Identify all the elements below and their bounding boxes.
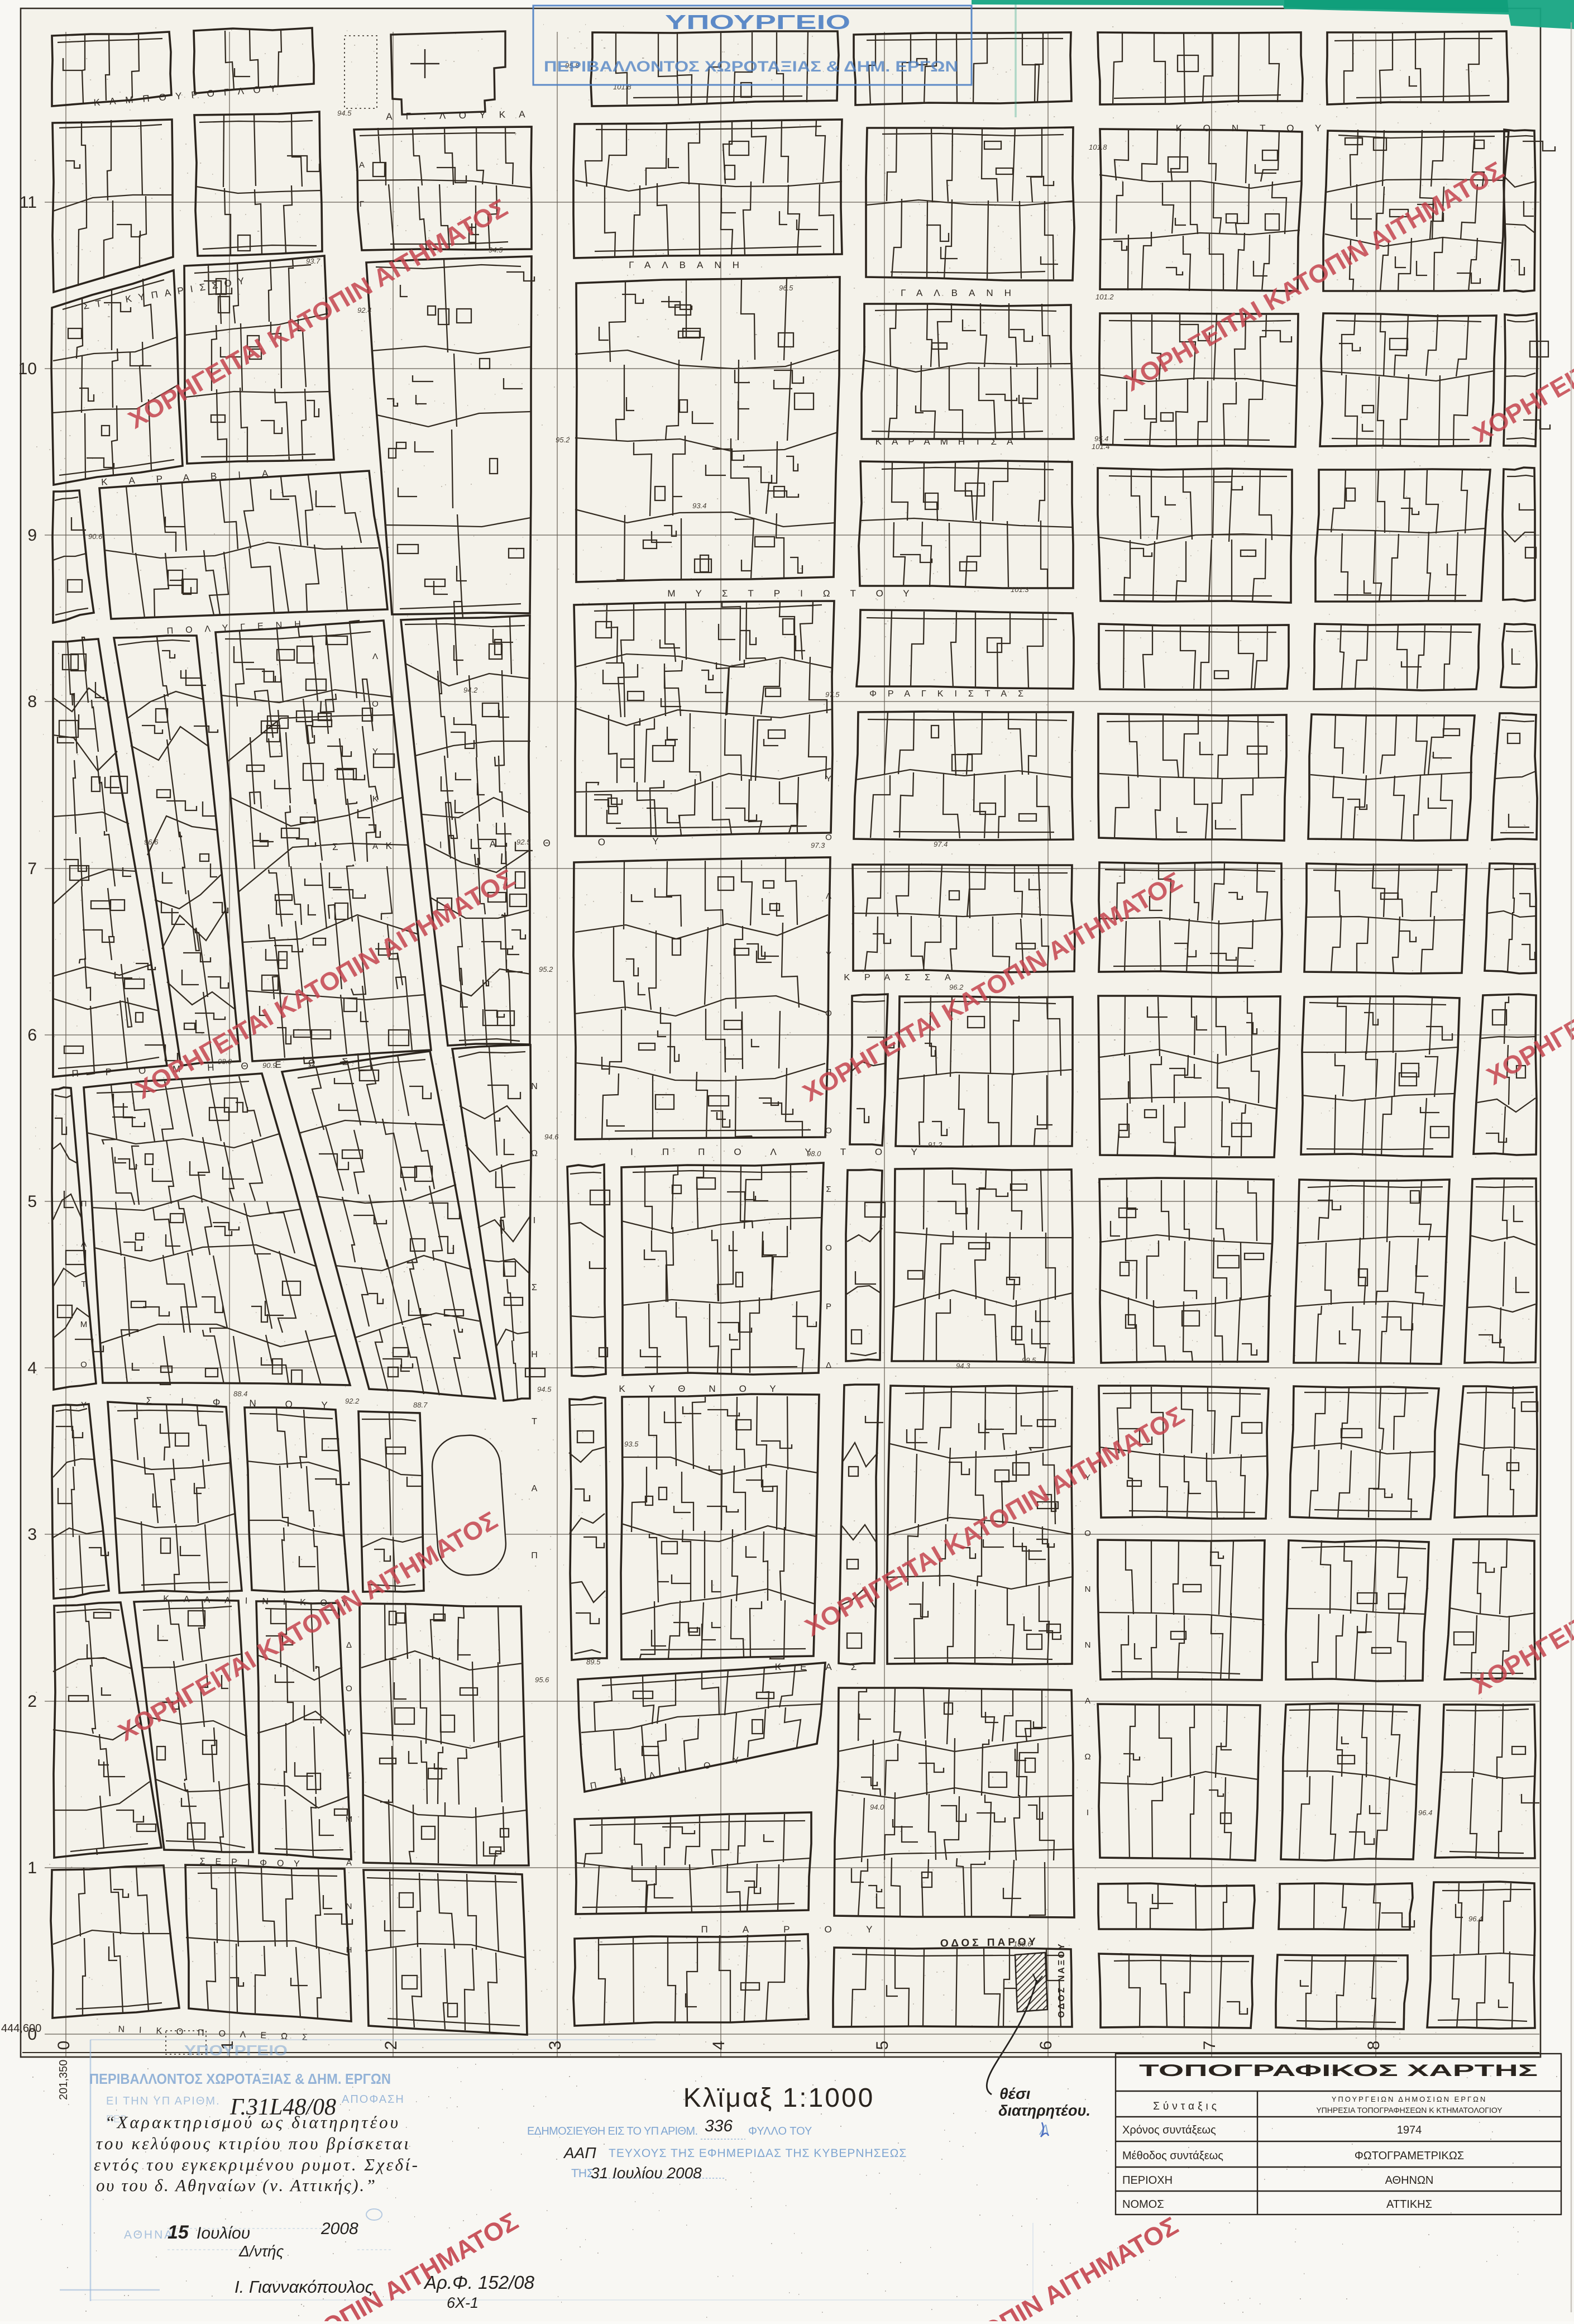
svg-text:Ο: Ο (825, 1126, 832, 1135)
svg-text:94.6: 94.6 (544, 1133, 559, 1141)
svg-text:ΦΡΑΓΚΙΣΤΑΣ: ΦΡΑΓΚΙΣΤΑΣ (869, 689, 1035, 699)
svg-text:Γ: Γ (360, 199, 364, 209)
svg-text:15: 15 (168, 2222, 189, 2243)
svg-text:Τ: Τ (81, 1280, 86, 1289)
svg-text:96.6: 96.6 (144, 838, 159, 846)
svg-text:100.6: 100.6 (1013, 1940, 1032, 1948)
svg-text:Σ: Σ (532, 1283, 537, 1292)
svg-text:ΦΥΛΛΟ ΤΟΥ: ΦΥΛΛΟ ΤΟΥ (748, 2125, 812, 2137)
svg-text:ΓΑΛΒΑΝΗ: ΓΑΛΒΑΝΗ (901, 288, 1022, 298)
svg-text:Σύνταξις: Σύνταξις (1153, 2101, 1220, 2112)
svg-text:ΥΠΗΡΕΣΙΑ ΤΟΠΟΓΡΑΦΗΣΕΩΝ Κ ΚΤΗΜΑ: ΥΠΗΡΕΣΙΑ ΤΟΠΟΓΡΑΦΗΣΕΩΝ Κ ΚΤΗΜΑΤΟΛΟΓΙΟΥ (1316, 2106, 1503, 2115)
svg-text:Ι. Γιαννακόπουλος: Ι. Γιαννακόπουλος (235, 2277, 374, 2297)
svg-text:Ι: Ι (533, 1216, 535, 1225)
svg-text:95.2: 95.2 (539, 965, 553, 973)
svg-text:Χρόνος συντάξεως: Χρόνος συντάξεως (1122, 2124, 1216, 2136)
svg-text:101.4: 101.4 (1092, 442, 1110, 451)
svg-text:Μέθοδος συντάξεως: Μέθοδος συντάξεως (1122, 2150, 1223, 2162)
svg-text:95.6: 95.6 (535, 1676, 549, 1684)
svg-text:ΠΕΡΙΟΧΗ: ΠΕΡΙΟΧΗ (1122, 2174, 1173, 2187)
svg-text:Υ: Υ (346, 1728, 352, 1737)
svg-text:93.4: 93.4 (692, 502, 706, 510)
svg-text:101.8: 101.8 (613, 83, 631, 91)
svg-text:2: 2 (382, 2041, 400, 2050)
svg-text:Α: Α (81, 1239, 87, 1249)
svg-text:Ν: Ν (1085, 1640, 1091, 1650)
svg-text:92.5: 92.5 (516, 838, 531, 846)
svg-text:ΠΑΡΟΥ: ΠΑΡΟΥ (701, 1924, 907, 1935)
svg-text:9: 9 (27, 526, 37, 545)
svg-text:Η: Η (531, 1350, 538, 1359)
svg-text:Ο: Ο (825, 1009, 832, 1018)
svg-text:Λ: Λ (826, 891, 831, 901)
svg-text:88.4: 88.4 (233, 1390, 247, 1398)
svg-text:ΚΑΡΑΜΗΤΣΑ: ΚΑΡΑΜΗΤΣΑ (875, 436, 1023, 447)
svg-text:Κλϊμαξ 1:1000: Κλϊμαξ 1:1000 (683, 2083, 875, 2113)
svg-text:10: 10 (18, 360, 37, 378)
svg-text:94.0: 94.0 (870, 1803, 884, 1811)
svg-text:Η: Η (346, 1945, 352, 1955)
svg-text:ΝΟΜΟΣ: ΝΟΜΟΣ (1122, 2198, 1164, 2211)
svg-text:Ρ: Ρ (826, 1302, 831, 1311)
svg-text:444,600: 444,600 (1, 2022, 41, 2035)
svg-text:97.3: 97.3 (811, 841, 825, 850)
svg-text:Α: Α (346, 1858, 352, 1868)
svg-text:101.3: 101.3 (1011, 585, 1029, 594)
svg-text:ΑΑΠ: ΑΑΠ (563, 2144, 596, 2161)
svg-text:διατηρητέου.: διατηρητέου. (998, 2102, 1090, 2119)
svg-text:Υ: Υ (826, 950, 831, 960)
svg-text:94.5: 94.5 (337, 109, 352, 117)
svg-text:ΠΕΡΙΒΑΛΛΟΝΤΟΣ ΧΩΡΟΤΑΞΙΑΣ & ΔΗΜ: ΠΕΡΙΒΑΛΛΟΝΤΟΣ ΧΩΡΟΤΑΞΙΑΣ & ΔΗΜ. ΕΡΓΩΝ (544, 58, 958, 75)
svg-text:7: 7 (27, 860, 37, 878)
svg-text:94.5: 94.5 (489, 246, 503, 254)
svg-text:Υ: Υ (81, 1400, 87, 1410)
svg-text:ΑΠΟΦΑΣΗ: ΑΠΟΦΑΣΗ (342, 2093, 405, 2106)
svg-text:ΑΘΗΝΩΝ: ΑΘΗΝΩΝ (1385, 2174, 1434, 2187)
svg-text:96.4: 96.4 (1468, 1915, 1482, 1923)
svg-text:Α: Α (1085, 1696, 1090, 1706)
svg-text:93.7: 93.7 (306, 257, 320, 265)
svg-text:Δ/ντής: Δ/ντής (238, 2242, 284, 2260)
svg-text:Ν: Ν (531, 1082, 538, 1091)
svg-text:94.2: 94.2 (463, 686, 478, 694)
svg-text:4: 4 (27, 1359, 37, 1377)
svg-text:89.5: 89.5 (586, 1658, 601, 1666)
svg-text:97.4: 97.4 (934, 840, 948, 848)
svg-text:Α: Α (359, 160, 365, 170)
svg-text:Ο: Ο (825, 833, 832, 842)
svg-text:101.8: 101.8 (1089, 143, 1107, 151)
svg-text:91.2: 91.2 (928, 1140, 943, 1149)
svg-text:Π: Π (531, 1551, 538, 1561)
svg-text:8: 8 (1365, 2041, 1383, 2050)
svg-text:Υ: Υ (372, 747, 378, 756)
svg-text:2008: 2008 (320, 2220, 358, 2238)
svg-text:3: 3 (27, 1525, 37, 1544)
svg-text:ΑΘΗΝΑ: ΑΘΗΝΑ (124, 2228, 174, 2241)
svg-text:Ν: Ν (1085, 1585, 1091, 1594)
svg-text:90.9: 90.9 (262, 1061, 276, 1070)
svg-text:“Χαρακτηρισμού ως διατηρητέου: “Χαρακτηρισμού ως διατηρητέου (105, 2112, 398, 2132)
svg-text:98.0: 98.0 (807, 1149, 821, 1158)
svg-text:11: 11 (20, 193, 37, 212)
svg-text:95.2: 95.2 (556, 436, 570, 444)
svg-text:3: 3 (546, 2041, 564, 2050)
svg-text:31 Ιουλίου 2008: 31 Ιουλίου 2008 (591, 2164, 702, 2182)
svg-text:θέσι: θέσι (999, 2085, 1031, 2102)
svg-text:Τ: Τ (532, 1417, 537, 1426)
svg-text:Π: Π (81, 1199, 87, 1209)
svg-text:Υ: Υ (826, 774, 831, 784)
svg-text:Ο: Ο (825, 1243, 832, 1253)
svg-text:ΥΠΟΥΡΓΕΙΟ: ΥΠΟΥΡΓΕΙΟ (184, 2042, 288, 2059)
svg-text:ΦΩΤΟΓΡΑΜΕΤΡΙΚΩΣ: ΦΩΤΟΓΡΑΜΕΤΡΙΚΩΣ (1355, 2150, 1464, 2162)
svg-text:4: 4 (710, 2041, 728, 2050)
svg-text:Ο: Ο (1084, 1529, 1091, 1538)
svg-text:ΚΕΑΣ: ΚΕΑΣ (775, 1662, 876, 1672)
svg-text:92.4: 92.4 (357, 306, 371, 314)
svg-text:ΥΠΟΥΡΓΕΙΟ: ΥΠΟΥΡΓΕΙΟ (665, 11, 850, 34)
svg-text:Α: Α (532, 1484, 538, 1493)
svg-text:Δ: Δ (346, 1640, 352, 1650)
svg-text:99.5: 99.5 (1022, 1356, 1036, 1364)
svg-text:Σ: Σ (826, 1185, 831, 1194)
svg-text:1974: 1974 (1397, 2124, 1422, 2136)
svg-text:90.6: 90.6 (88, 532, 103, 541)
svg-text:95.4: 95.4 (1094, 435, 1108, 443)
svg-text:97.5: 97.5 (825, 690, 840, 699)
svg-text:Μ: Μ (346, 1815, 353, 1824)
svg-text:93.5: 93.5 (624, 1440, 639, 1448)
svg-text:Α: Α (372, 842, 378, 851)
svg-text:96.4: 96.4 (1418, 1808, 1432, 1817)
svg-text:5: 5 (873, 2041, 892, 2050)
svg-text:Ο: Ο (372, 699, 379, 709)
svg-text:6Χ-1: 6Χ-1 (447, 2294, 479, 2311)
svg-text:96.5: 96.5 (779, 284, 793, 292)
svg-text:8: 8 (27, 693, 37, 711)
svg-text:ΕΔΗΜΟΣΙΕΥΘΗ ΕΙΣ ΤΟ ΥΠ ΑΡΙΘΜ.: ΕΔΗΜΟΣΙΕΥΘΗ ΕΙΣ ΤΟ ΥΠ ΑΡΙΘΜ. (527, 2125, 698, 2137)
svg-text:Μ: Μ (80, 1320, 88, 1329)
svg-text:94.3: 94.3 (956, 1362, 970, 1370)
svg-text:Ν: Ν (346, 1902, 352, 1911)
svg-text:94.5: 94.5 (537, 1385, 552, 1394)
svg-text:ΚΟΝΤΟΥ: ΚΟΝΤΟΥ (1176, 123, 1342, 133)
svg-text:1: 1 (27, 1859, 37, 1877)
svg-text:336: 336 (705, 2117, 733, 2135)
svg-text:5: 5 (27, 1192, 37, 1211)
svg-text:92.2: 92.2 (345, 1397, 360, 1405)
svg-text:ΠΕΡΙΒΑΛΛΟΝΤΟΣ ΧΩΡΟΤΑΞΙΑΣ & ΔΗΜ: ΠΕΡΙΒΑΛΛΟΝΤΟΣ ΧΩΡΟΤΑΞΙΑΣ & ΔΗΜ. ΕΡΓΩΝ (89, 2070, 391, 2087)
svg-text:ΑΤΤΙΚΗΣ: ΑΤΤΙΚΗΣ (1386, 2198, 1432, 2211)
svg-text:0: 0 (55, 2041, 73, 2050)
svg-text:2: 2 (27, 1692, 37, 1711)
svg-text:Σ: Σ (346, 1771, 351, 1781)
svg-text:Ω: Ω (531, 1149, 538, 1158)
svg-text:ΜΥΣΤΡΙΩΤΟΥ: ΜΥΣΤΡΙΩΤΟΥ (667, 588, 929, 599)
svg-text:ΕΙ ΤΗΝ ΥΠ ΑΡΙΘΜ.: ΕΙ ΤΗΝ ΥΠ ΑΡΙΘΜ. (106, 2095, 221, 2107)
svg-text:ΓΑΛΒΑΝΗ: ΓΑΛΒΑΝΗ (629, 260, 750, 270)
svg-text:7: 7 (1200, 2041, 1219, 2050)
svg-text:Λ: Λ (372, 652, 378, 661)
svg-text:Δ: Δ (826, 1361, 831, 1370)
svg-text:ΟΔΟΣ ΝΑΞΟΥ: ΟΔΟΣ ΝΑΞΟΥ (1057, 1942, 1066, 2018)
svg-text:Ω: Ω (1084, 1752, 1090, 1762)
svg-text:ΚΥΘΝΟΥ: ΚΥΘΝΟΥ (619, 1383, 799, 1394)
svg-text:Ο: Ο (346, 1684, 352, 1693)
svg-text:6: 6 (27, 1026, 37, 1044)
svg-text:ΤΕΥΧΟΥΣ ΤΗΣ ΕΦΗΜΕΡΙΔΑΣ ΤΗΣ ΚΥΒ: ΤΕΥΧΟΥΣ ΤΗΣ ΕΦΗΜΕΡΙΔΑΣ ΤΗΣ ΚΥΒΕΡΝΗΣΕΩΣ (609, 2147, 907, 2160)
svg-text:ΙΠΠΟΛΥΤΟΥ: ΙΠΠΟΛΥΤΟΥ (630, 1147, 946, 1157)
svg-text:ΤΟΠΟΓΡΑΦΙΚΟΣ ΧΑΡΤΗΣ: ΤΟΠΟΓΡΑΦΙΚΟΣ ΧΑΡΤΗΣ (1139, 2061, 1538, 2080)
svg-text:Ι: Ι (1087, 1808, 1089, 1817)
svg-text:Ιουλίου: Ιουλίου (197, 2224, 250, 2242)
svg-text:ΚΡΑΣΣΑ: ΚΡΑΣΣΑ (844, 973, 965, 982)
svg-text:6: 6 (1037, 2041, 1055, 2050)
svg-text:101.2: 101.2 (1095, 293, 1114, 301)
svg-text:88.7: 88.7 (413, 1401, 428, 1409)
svg-text:Ο: Ο (80, 1360, 87, 1369)
svg-text:Κ: Κ (372, 794, 378, 804)
svg-text:201,350: 201,350 (58, 2060, 70, 2100)
svg-text:ΥΠΟΥΡΓΕΙΩΝ ΔΗΜΟΣΙΩΝ ΕΡΓΩΝ: ΥΠΟΥΡΓΕΙΩΝ ΔΗΜΟΣΙΩΝ ΕΡΓΩΝ (1332, 2095, 1487, 2103)
